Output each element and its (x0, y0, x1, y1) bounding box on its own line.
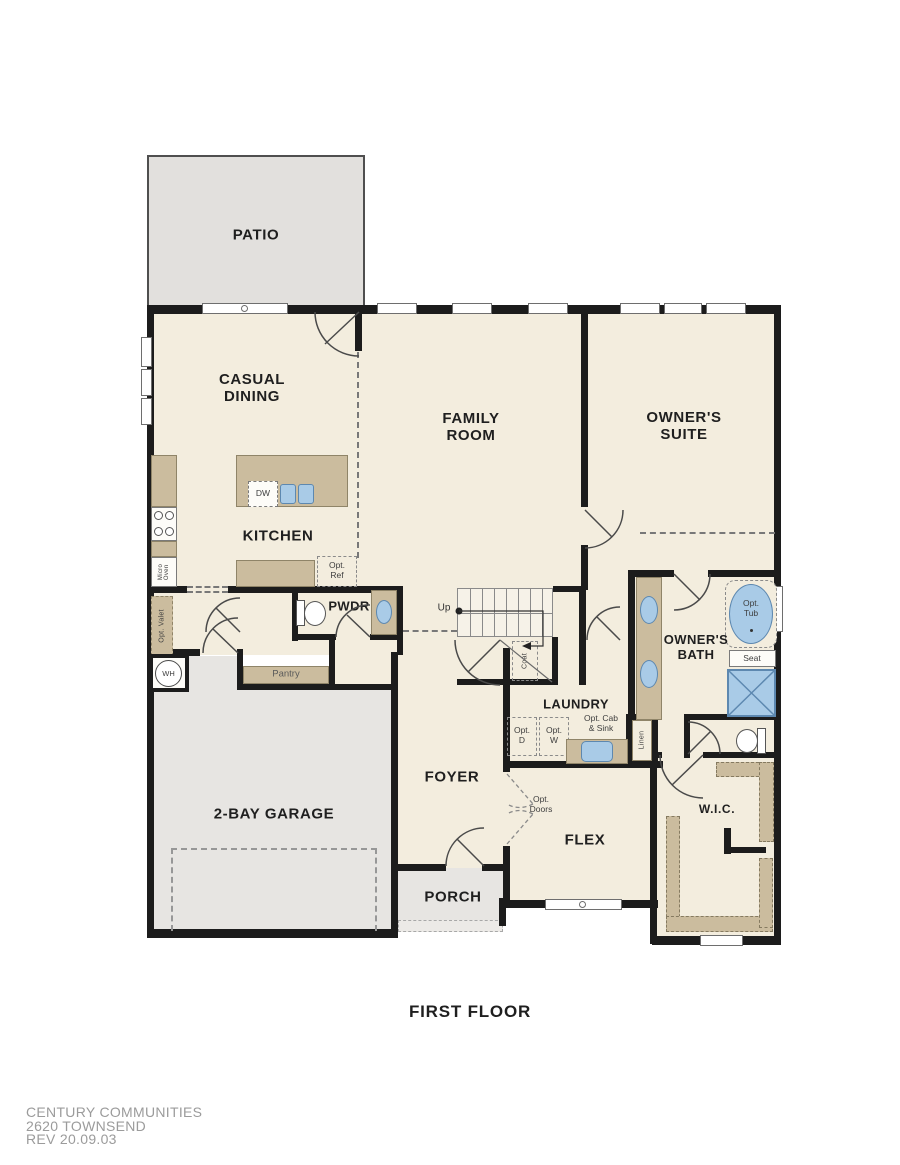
staircase (457, 588, 553, 637)
opt-tub-label: Opt. Tub (743, 599, 759, 619)
cooktop-burner-3 (154, 527, 163, 536)
wall-bath-top-b (708, 570, 774, 577)
family-room-label: FAMILY ROOM (442, 410, 499, 445)
kitchen-counter-bottom (236, 560, 315, 587)
kitchen-counter-left-upper (151, 455, 177, 507)
foyer-area (398, 655, 503, 871)
pantry-label: Pantry (272, 670, 299, 681)
wall-porch-top-left (398, 864, 446, 871)
wall-toilet-left (684, 714, 690, 758)
opt-valet-label: Opt. Valet (159, 609, 166, 643)
wic-shelf-bottom (666, 916, 773, 932)
wic-shelf-left (666, 816, 680, 932)
bath-sink-1 (640, 596, 658, 624)
owners-suite-label: OWNER'S SUITE (646, 409, 721, 444)
footer-revision: REV 20.09.03 (26, 1133, 202, 1147)
garage-label: 2-BAY GARAGE (214, 805, 335, 822)
wall-pwdr-right (397, 586, 403, 655)
garage-door-outline (171, 848, 377, 931)
dishwasher-label: DW (256, 489, 270, 499)
owner-toilet-tank (757, 728, 766, 754)
wic-label: W.I.C. (699, 803, 735, 817)
laundry-sink (581, 741, 613, 762)
window-family-2 (452, 303, 492, 314)
porch-label: PORCH (424, 888, 481, 905)
opt-washer-label: Opt. W (546, 726, 562, 746)
bath-sink-2 (640, 660, 658, 688)
opt-cab-sink-label: Opt. Cab & Sink (584, 714, 618, 734)
opt-doors-label: Opt. Doors (530, 795, 553, 815)
suite-entry-dashed-line (640, 532, 775, 534)
foyer-label: FOYER (425, 768, 480, 785)
cased-opening-dining (357, 352, 359, 558)
coat-label: Coat (522, 653, 529, 669)
main-living-area (151, 311, 775, 591)
cooktop-burner-2 (165, 511, 174, 520)
window-dining-2 (141, 369, 152, 396)
wall-stair-top-link (553, 586, 586, 592)
window-family-1 (377, 303, 417, 314)
wall-understair-bottom (457, 679, 558, 685)
kitchen-label: KITCHEN (243, 527, 314, 544)
pantry-hall-area (335, 649, 398, 684)
window-family-3 (528, 303, 568, 314)
water-heater: WH (155, 660, 182, 687)
cooktop-burner-1 (154, 511, 163, 520)
flex-label: FLEX (565, 831, 606, 848)
pwdr-toilet-bowl (304, 601, 326, 626)
wall-bath-left (628, 570, 635, 720)
stair-rail (458, 613, 552, 614)
window-flex-latch (579, 901, 586, 908)
wall-porch-top-right (482, 864, 506, 871)
window-suite-3 (706, 303, 746, 314)
footer-block: CENTURY COMMUNITIES 2620 TOWNSEND REV 20… (26, 1106, 202, 1147)
casual-dining-label: CASUAL DINING (219, 371, 285, 406)
pwdr-label: PWDR (328, 600, 369, 615)
wic-shelf-right-lower (759, 858, 773, 928)
opt-dryer-label: Opt. D (514, 726, 530, 746)
wall-wic-left (650, 752, 657, 944)
wall-family-suite-lower (581, 545, 588, 590)
wall-linen-right (652, 714, 658, 767)
wall-bath-top-a (628, 570, 674, 577)
window-wic (700, 935, 743, 946)
micro-oven-label: Micro Oven (158, 564, 170, 580)
wall-wic-stub-h (724, 847, 766, 853)
window-slider-latch (241, 305, 248, 312)
floor-plan: Micro Oven DW Opt. Ref Opt. Valet WH Pan… (0, 0, 900, 1165)
pwdr-sink (376, 600, 392, 624)
wall-pantry-bottom (237, 684, 398, 690)
wall-porch-right-stub (499, 898, 506, 926)
patio-label: PATIO (233, 226, 280, 243)
window-dining-3 (141, 398, 152, 425)
tub-drain (750, 629, 753, 632)
owner-toilet-bowl (736, 729, 758, 753)
window-dining-1 (141, 337, 152, 367)
opt-ref-label: Opt. Ref (329, 561, 345, 581)
stairs-up-label: Up (438, 602, 451, 614)
wall-family-suite-upper (581, 305, 588, 507)
porch-step (398, 920, 503, 932)
wall-wic-top-b (703, 752, 781, 758)
first-floor-label: FIRST FLOOR (409, 1002, 531, 1022)
wall-dining-divider (355, 305, 362, 351)
wall-garage-right (391, 652, 398, 938)
kitchen-sink-basin-2 (298, 484, 314, 504)
cased-opening-kitchen (187, 586, 228, 593)
wall-kitchen-bottom-a (151, 586, 187, 593)
window-suite-1 (620, 303, 660, 314)
wall-flex-left-lower (503, 846, 510, 905)
window-suite-2 (664, 303, 702, 314)
wall-stair-right (579, 586, 586, 685)
shower (727, 669, 776, 717)
wall-pantry-right (329, 640, 335, 690)
cooktop-burner-4 (165, 527, 174, 536)
shower-seat-label: Seat (743, 654, 761, 664)
wic-shelf-right-upper (759, 762, 774, 842)
wall-kitchen-bottom-b (228, 586, 295, 593)
hall-dashed-line (403, 630, 457, 632)
owners-bath-label: OWNER'S BATH (664, 633, 728, 663)
linen-label: Linen (639, 731, 646, 750)
kitchen-counter-left-lower (151, 541, 177, 557)
laundry-label: LAUNDRY (543, 698, 609, 713)
kitchen-sink-basin-1 (280, 484, 296, 504)
wall-understair-right (552, 637, 558, 685)
